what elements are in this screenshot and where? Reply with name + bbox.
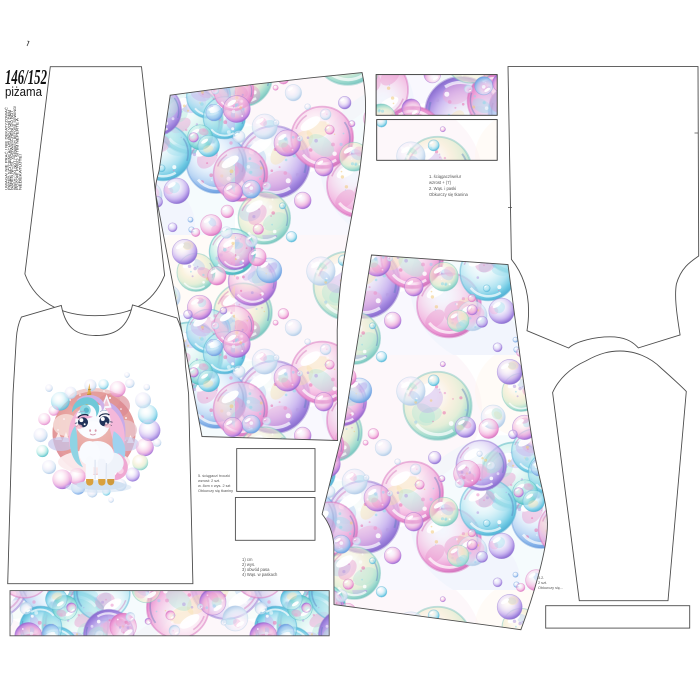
svg-text:w. 8cm x wys. 2 szt: w. 8cm x wys. 2 szt [198, 484, 231, 488]
svg-text:5.2.: 5.2. [538, 576, 544, 580]
svg-text:Obkurczy się tkanina: Obkurczy się tkanina [429, 192, 469, 197]
svg-text:2 szt.: 2 szt. [538, 581, 547, 585]
svg-text:4) Wąs. w paskach: 4) Wąs. w paskach [242, 572, 278, 577]
svg-text:wzrost: 2 szt.: wzrost: 2 szt. [198, 479, 220, 483]
svg-text:piżama: piżama [5, 85, 42, 99]
svg-text:wzrost + (7): wzrost + (7) [429, 180, 452, 185]
svg-text:Obkurczy się tkaniny: Obkurczy się tkaniny [198, 489, 233, 493]
svg-text:NEDEKATUJTE!: NEDEKATUJTE! [19, 154, 23, 190]
svg-text:1. ściągacz/welur: 1. ściągacz/welur [429, 174, 462, 179]
svg-text:2. Wąs. i paski: 2. Wąs. i paski [429, 186, 456, 191]
svg-text:Obkurczy się...: Obkurczy się... [538, 586, 563, 590]
svg-text:5. ściągacz/ troczki: 5. ściągacz/ troczki [198, 474, 230, 478]
